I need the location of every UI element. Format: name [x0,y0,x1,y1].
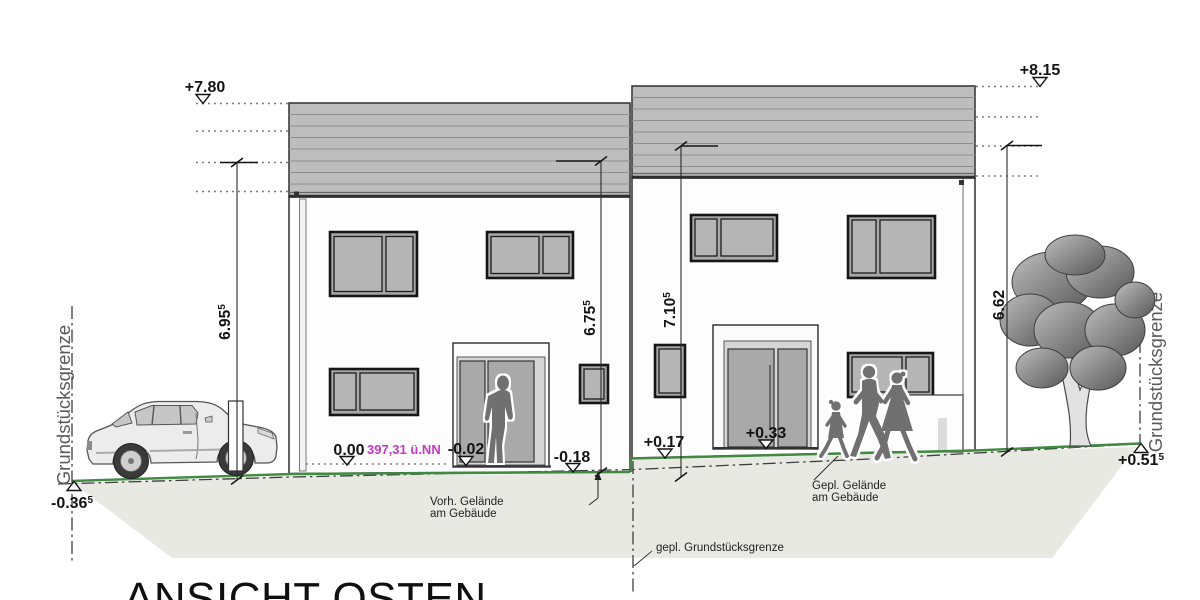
car-pillar-line [180,406,181,424]
window-pane [721,219,773,256]
level-value: -0.36 [51,495,88,512]
man-head [863,366,875,378]
window-pane [852,220,876,273]
level-sup: 5 [87,495,93,506]
level-right-roof: +8.15 [1020,62,1061,79]
child-ponytail [829,400,833,404]
foliage-blob [1016,348,1068,388]
level-right-boundary: +0.515 [1118,452,1164,469]
foliage-blob [1045,235,1105,275]
dim-value: 7.10 [662,298,679,328]
right-boundary-label: Grundstücksgrenze [1145,292,1166,452]
roof-scupper [959,180,964,185]
window-pane [360,373,414,410]
existing-grade-label-1: Vorh. Gelände [430,496,504,508]
level-left-door: -0.02 [448,441,485,458]
window-pane [491,237,539,274]
dim-sup: 5 [217,304,228,310]
car-taillight [87,441,92,450]
hub [128,458,134,464]
foliage-blob [1115,282,1155,318]
roof-scupper [294,192,299,197]
dimension-mask-post [229,401,244,471]
planned-grade-label-2: am Gebäude [812,492,879,504]
existing-grade-label-2: am Gebäude [430,508,497,520]
window-pane [880,220,931,273]
level-value: +0.51 [1118,452,1159,469]
left-roof-rect [289,103,630,197]
window-pane [334,237,382,292]
window-pane [334,373,356,410]
window-left-ground [327,366,421,418]
elevation-drawing: Grundstücksgrenze Grundstücksgrenze gepl… [0,0,1200,600]
window-left-small [577,362,611,406]
level-zero-datum: 397,31 ü.NN [367,442,441,457]
car-rear-wheel [114,444,149,479]
planned-boundary-label: gepl. Grundstücksgrenze [656,542,784,554]
dim-text-right-outer: 6.62 [991,290,1008,320]
window-right-upper-2 [845,213,938,281]
dim-sup: 5 [582,300,593,306]
window-left-upper-2 [484,229,576,281]
window-left-upper-1 [327,229,420,299]
window-pane [659,349,681,393]
window-right-small [652,342,688,400]
window-pane [543,237,569,274]
right-building [632,86,975,458]
right-roof-band [632,86,975,178]
dim-value: 6.75 [582,305,599,336]
car-door-handle [183,431,192,434]
dim-value: 6.95 [217,309,234,340]
window-pane [906,357,929,392]
dim-sup: 5 [662,292,673,298]
shaft-shade [938,418,947,452]
drawing-title: ANSICHT OSTEN [124,574,487,600]
window-pane [386,237,413,292]
foliage-blob [1070,346,1126,390]
left-downpipe [300,199,307,471]
woman-hair [901,372,906,377]
person-head [497,376,509,391]
left-building [289,103,630,474]
car-side-glass [135,406,198,426]
dim-value: 6.62 [991,290,1008,320]
level-sup: 5 [1158,452,1164,463]
level-left-roof: +7.80 [185,79,226,96]
cellar-light-shaft [908,395,963,452]
left-roof-band [289,103,630,197]
elevation-svg: Grundstücksgrenze Grundstücksgrenze gepl… [0,0,1200,600]
left-boundary-label: Grundstücksgrenze [53,325,74,485]
planned-grade-label-1: Gepl. Gelände [812,480,886,492]
level-left-boundary: -0.365 [51,495,93,512]
window-pane [695,219,717,256]
window-right-upper-1 [688,212,780,264]
